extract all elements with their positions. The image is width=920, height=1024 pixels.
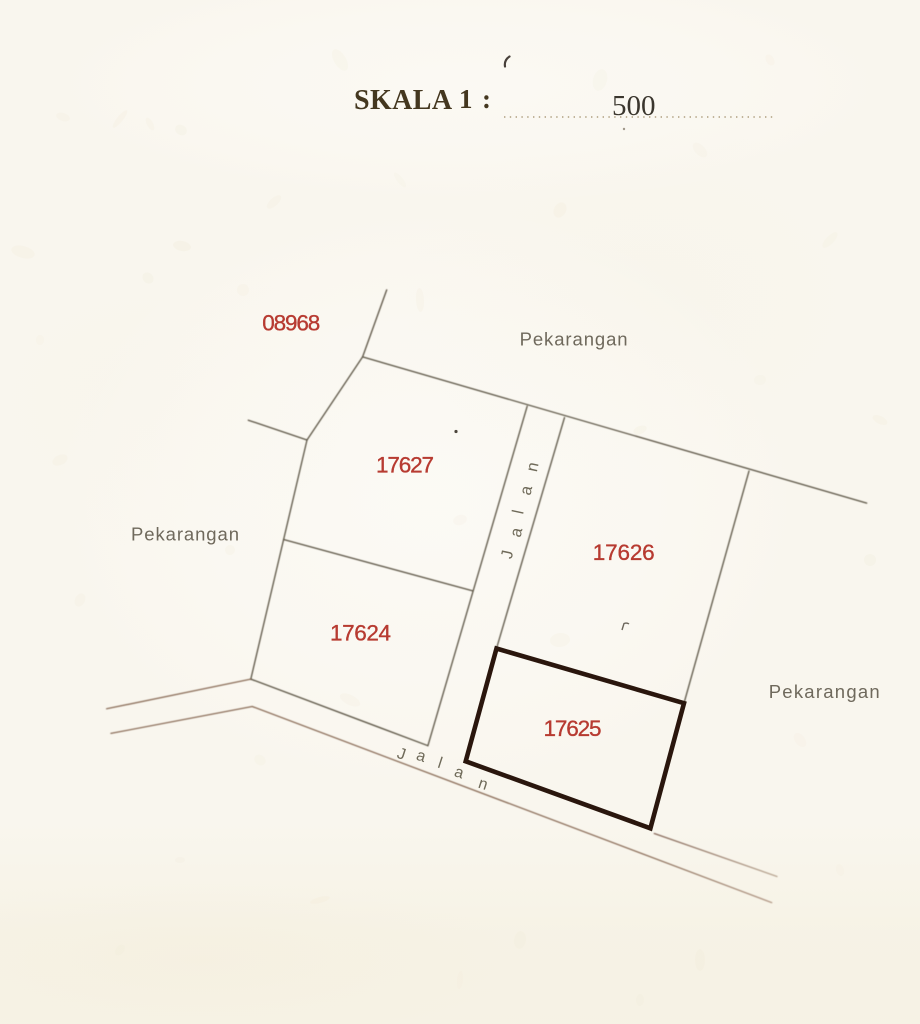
svg-text:Pekarangan: Pekarangan [131, 524, 240, 545]
svg-text:Pekarangan: Pekarangan [769, 681, 881, 702]
svg-text:17627: 17627 [376, 453, 434, 478]
svg-text:Pekarangan: Pekarangan [520, 329, 629, 350]
svg-text:17626: 17626 [593, 540, 655, 565]
svg-text:500: 500 [612, 90, 656, 122]
svg-text:SKALA: SKALA [354, 85, 453, 116]
svg-text:17624: 17624 [330, 621, 391, 646]
svg-text:17625: 17625 [544, 716, 602, 741]
svg-text:1: 1 [459, 84, 473, 114]
svg-text:08968: 08968 [262, 311, 320, 336]
svg-text::: : [482, 84, 491, 114]
